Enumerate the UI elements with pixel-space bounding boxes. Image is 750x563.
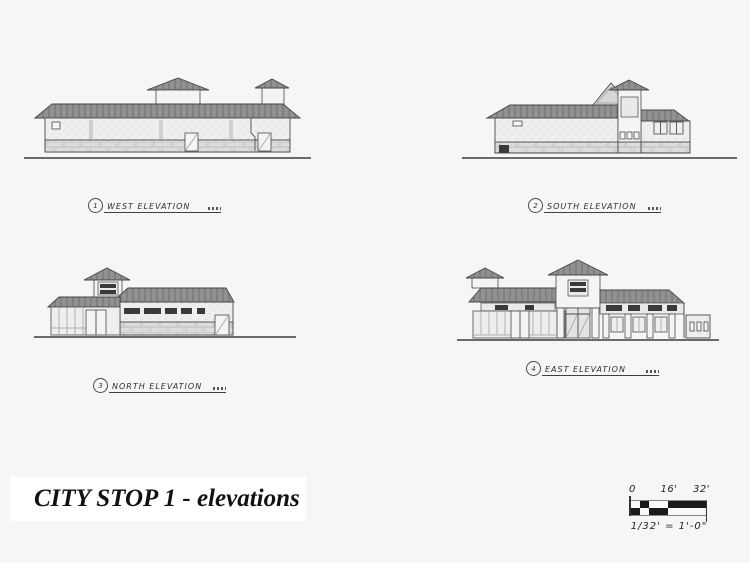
elevation-number-4: 4 (526, 361, 541, 376)
label-scale-note-north (213, 387, 226, 390)
elevation-label-south: 2 SOUTH ELEVATION (528, 198, 661, 213)
east-right-wing (600, 290, 684, 338)
east-entry-doors (566, 308, 590, 338)
elevation-label-text-north: NORTH ELEVATION (112, 382, 202, 391)
east-utility-wall (686, 315, 710, 338)
east-left-wing (469, 288, 568, 338)
south-tower-sign-panel (621, 97, 638, 117)
elevation-label-text-east: EAST ELEVATION (545, 365, 626, 374)
west-door-left (185, 133, 198, 151)
east-left-sign-strip (481, 303, 555, 311)
label-scale-note-east (646, 370, 659, 373)
label-scale-note-south (648, 207, 661, 210)
south-utility-box (499, 145, 509, 153)
scale-note: 1/32' = 1'-0" (628, 521, 710, 532)
west-window (52, 122, 60, 129)
drawing-sheet: 1 WEST ELEVATION 2 SOUTH ELEVATION 3 NOR… (0, 0, 750, 563)
elevation-label-text-south: SOUTH ELEVATION (547, 202, 637, 211)
elevation-number-2: 2 (528, 198, 543, 213)
elevation-label-west: 1 WEST ELEVATION (88, 198, 221, 213)
scale-tick-32: 32' (693, 484, 710, 495)
west-cupola-left (147, 78, 209, 104)
north-elevation-drawing (28, 252, 303, 347)
elevation-label-east: 4 EAST ELEVATION (526, 361, 659, 376)
graphic-scale: 0 16' 32' 1/32' = 1'-0" (628, 484, 710, 532)
elevation-label-text-west: WEST ELEVATION (107, 202, 190, 211)
title-block: CITY STOP 1 - elevations (10, 477, 306, 521)
south-elevation-drawing (458, 72, 742, 170)
east-left-tower (466, 268, 504, 288)
elevation-number-3: 3 (93, 378, 108, 393)
west-roof-band (35, 104, 300, 118)
elevation-number-1: 1 (88, 198, 103, 213)
scale-tick-16: 16' (661, 484, 678, 495)
west-elevation-drawing (22, 72, 314, 170)
north-storefront (48, 297, 120, 335)
sheet-title: CITY STOP 1 - elevations (34, 485, 300, 513)
east-center-tower (548, 260, 608, 338)
label-scale-note-west (208, 207, 221, 210)
north-door (215, 315, 229, 335)
east-elevation-drawing (453, 248, 723, 348)
south-vent (513, 121, 522, 126)
scale-tick-0: 0 (629, 484, 636, 495)
elevation-label-north: 3 NORTH ELEVATION (93, 378, 226, 393)
west-door-right (258, 133, 271, 151)
scale-bar-graphic (629, 500, 707, 516)
